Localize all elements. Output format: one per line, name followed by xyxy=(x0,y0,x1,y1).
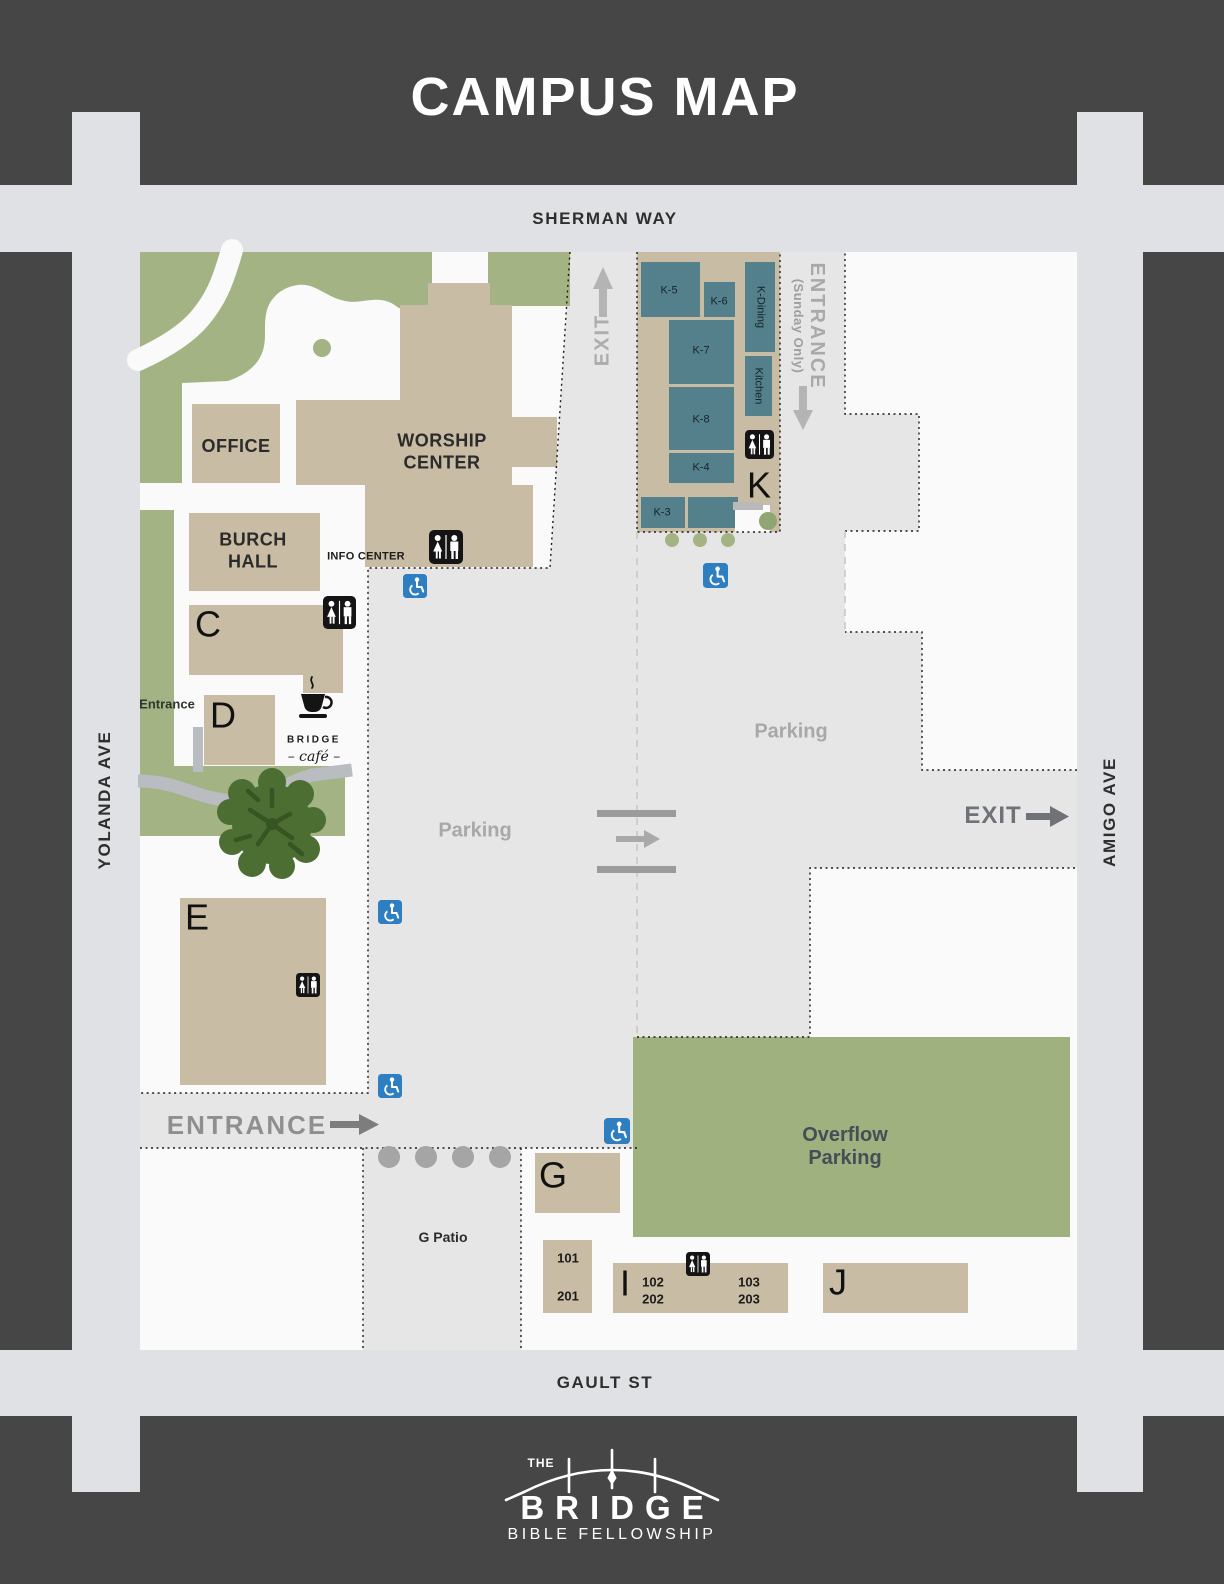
logo-the: THE xyxy=(528,1457,555,1471)
label-exit-east: EXIT xyxy=(964,802,1021,830)
logo-name: BRIDGE xyxy=(509,1489,714,1527)
label-building-c: C xyxy=(195,603,221,644)
label-room-202: 202 xyxy=(642,1293,664,1308)
street-label-gault-st: GAULT ST xyxy=(557,1373,654,1393)
label-burch-hall: BURCH HALL xyxy=(208,529,298,572)
wheelchair-accessible-icon xyxy=(378,900,402,924)
label-room-102: 102 xyxy=(642,1276,664,1291)
restroom-icon xyxy=(686,1252,710,1276)
campus-map-page: CAMPUS MAP SHERMAN WAY GAULT ST YOLANDA … xyxy=(0,0,1224,1584)
page-title: CAMPUS MAP xyxy=(410,66,799,128)
wheelchair-accessible-icon xyxy=(604,1118,630,1144)
street-label-yolanda-ave: YOLANDA AVE xyxy=(95,731,115,870)
label-building-e: E xyxy=(185,896,209,937)
label-entrance-sunday-sub: (Sunday Only) xyxy=(790,262,805,389)
label-entrance-sunday: ENTRANCE (Sunday Only) xyxy=(790,262,828,389)
label-room-203: 203 xyxy=(738,1293,760,1308)
label-room-103: 103 xyxy=(738,1276,760,1291)
label-entrance-sunday-main: ENTRANCE xyxy=(805,262,828,389)
wheelchair-accessible-icon xyxy=(703,563,728,588)
restroom-icon xyxy=(745,430,774,459)
k-tree-dot xyxy=(759,512,777,530)
label-room-k8: K-8 xyxy=(692,414,709,427)
label-overflow-parking: Overflow Parking xyxy=(780,1124,910,1170)
street-label-sherman-way: SHERMAN WAY xyxy=(532,209,677,229)
label-bridge-cafe: BRIDGE xyxy=(287,734,341,746)
label-parking-east: Parking xyxy=(754,721,827,744)
label-room-k-dining: K-Dining xyxy=(754,286,767,328)
label-g-patio: G Patio xyxy=(418,1229,467,1245)
label-room-k4: K-4 xyxy=(692,462,709,475)
label-worship-center: WORSHIP CENTER xyxy=(382,430,502,473)
label-building-g: G xyxy=(539,1154,567,1195)
label-room-201: 201 xyxy=(557,1290,579,1305)
label-room-k7: K-7 xyxy=(692,345,709,358)
campus-map-graphic xyxy=(0,0,1224,1584)
logo-subtitle: BIBLE FELLOWSHIP xyxy=(508,1526,717,1544)
label-room-k6: K-6 xyxy=(710,296,727,309)
wheelchair-accessible-icon xyxy=(378,1074,402,1098)
label-office: OFFICE xyxy=(202,436,271,458)
label-building-d: D xyxy=(210,694,236,735)
label-room-k3: K-3 xyxy=(653,507,670,520)
restroom-icon xyxy=(323,596,356,629)
label-entrance-main: ENTRANCE xyxy=(167,1111,327,1141)
label-entrance-yolanda: Entrance xyxy=(139,698,195,713)
label-bridge-cafe-script: – café – xyxy=(288,749,341,765)
label-info-center: INFO CENTER xyxy=(327,551,405,564)
restroom-icon xyxy=(429,530,463,564)
label-building-j: J xyxy=(829,1261,847,1302)
restroom-icon xyxy=(296,973,320,997)
label-room-101: 101 xyxy=(557,1252,579,1267)
label-building-k: K xyxy=(747,464,771,505)
label-exit-north: EXIT xyxy=(592,314,615,366)
label-building-i: I xyxy=(620,1262,630,1303)
wheelchair-accessible-icon xyxy=(403,574,427,598)
label-room-kitchen: Kitchen xyxy=(752,368,765,405)
label-parking-central: Parking xyxy=(438,820,511,843)
street-label-amigo-ave: AMIGO AVE xyxy=(1100,757,1120,867)
label-room-k5: K-5 xyxy=(660,285,677,298)
room-k-extra xyxy=(688,497,738,528)
